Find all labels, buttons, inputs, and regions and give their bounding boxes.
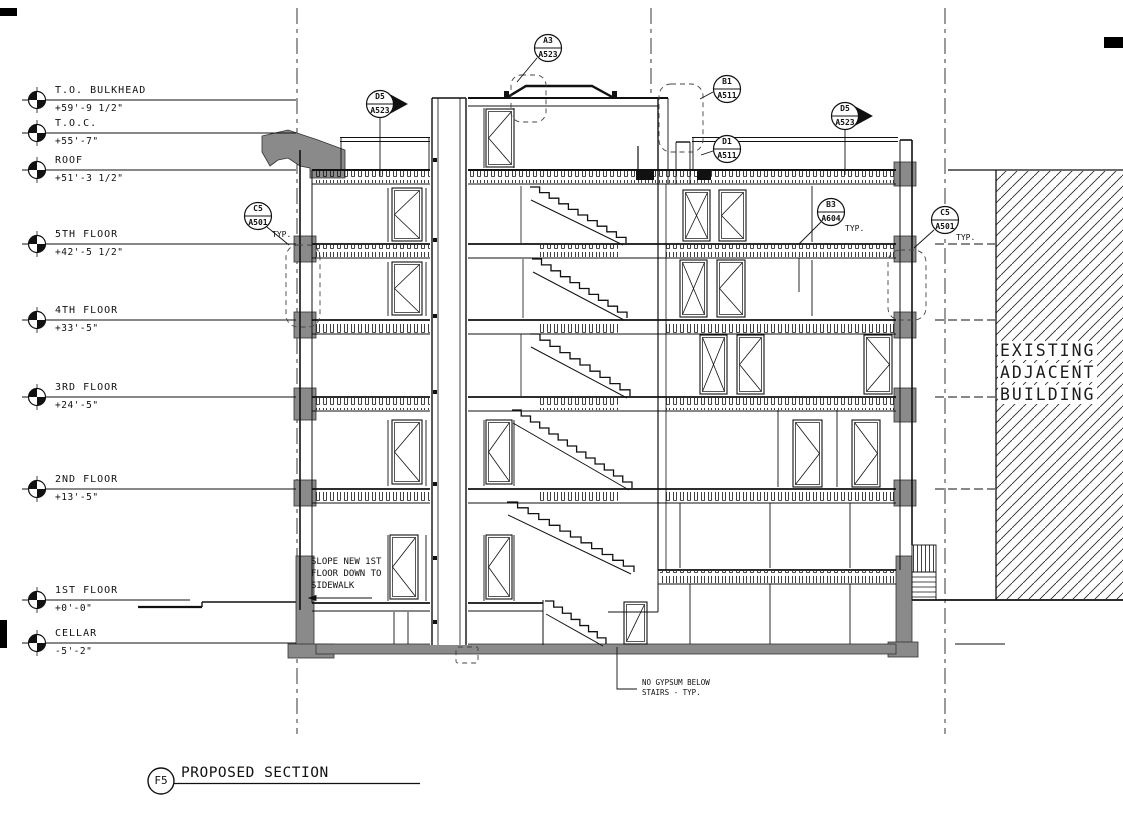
- existing-building-label: ADJACENT: [998, 363, 1097, 382]
- callout-detail: C5: [240, 204, 276, 213]
- level-label: 5TH FLOOR: [55, 229, 118, 240]
- core-shaft: [430, 96, 468, 645]
- note-slope-line: SIDEWALK: [311, 580, 354, 592]
- callout-sheet: A523: [362, 106, 398, 115]
- level-elevation: +59'-9 1/2": [55, 103, 123, 114]
- callout-sheet: A523: [827, 118, 863, 127]
- level-elevation: +51'-3 1/2": [55, 173, 123, 184]
- level-label: 4TH FLOOR: [55, 305, 118, 316]
- callout-detail: D1: [709, 137, 745, 146]
- note-leaders: [309, 596, 637, 690]
- level-elevation: +33'-5": [55, 323, 99, 334]
- level-elevation: +42'-5 1/2": [55, 247, 123, 258]
- level-label: T.O.C.: [55, 118, 97, 129]
- level-elevation: +55'-7": [55, 136, 99, 147]
- callout-detail: C5: [927, 208, 963, 217]
- note-gypsum-line: NO GYPSUM BELOW: [642, 678, 710, 687]
- ground-lines: [138, 600, 1123, 644]
- floor-slabs: [312, 170, 896, 612]
- callout-sheet: A501: [927, 222, 963, 231]
- title-tag: F5: [148, 774, 174, 787]
- callout-sheet: A501: [240, 218, 276, 227]
- page-title: PROPOSED SECTION: [181, 765, 329, 781]
- exterior-stoop: [912, 545, 936, 600]
- skylight: [504, 86, 711, 180]
- callout-sheet: A523: [530, 50, 566, 59]
- level-label: CELLAR: [55, 628, 97, 639]
- level-elevation: +13'-5": [55, 492, 99, 503]
- level-elevation: -5'-2": [55, 646, 92, 657]
- note-gypsum-line: STAIRS - TYP.: [642, 688, 701, 697]
- proposed-section-sheet: T.O. BULKHEAD +59'-9 1/2" T.O.C. +55'-7"…: [0, 0, 1123, 818]
- level-label: T.O. BULKHEAD: [55, 85, 146, 96]
- callout-detail: D5: [827, 104, 863, 113]
- existing-building-label: EXISTING: [998, 341, 1097, 360]
- callout-sheet: A511: [709, 91, 745, 100]
- level-label: 3RD FLOOR: [55, 382, 118, 393]
- level-extension-lines: [935, 244, 995, 489]
- typ-label: TYP.: [845, 224, 864, 233]
- callout-detail: A3: [530, 36, 566, 45]
- callout-sheet: A604: [813, 214, 849, 223]
- note-slope-line: FLOOR DOWN TO: [311, 568, 381, 580]
- level-label: 2ND FLOOR: [55, 474, 118, 485]
- level-label: 1ST FLOOR: [55, 585, 118, 596]
- callout-detail: D5: [362, 92, 398, 101]
- typ-label: TYP.: [272, 230, 291, 239]
- note-slope-line: SLOPE NEW 1ST: [311, 556, 381, 568]
- level-elevation: +0'-0": [55, 603, 92, 614]
- callout-bubbles: [245, 35, 959, 234]
- callout-detail: B1: [709, 77, 745, 86]
- callout-detail: B3: [813, 200, 849, 209]
- level-label: ROOF: [55, 155, 83, 166]
- typ-label: TYP.: [956, 233, 975, 242]
- existing-building-label: BUILDING: [998, 385, 1097, 404]
- section-linework: [0, 0, 1123, 818]
- level-elevation: +24'-5": [55, 400, 99, 411]
- callout-sheet: A511: [709, 151, 745, 160]
